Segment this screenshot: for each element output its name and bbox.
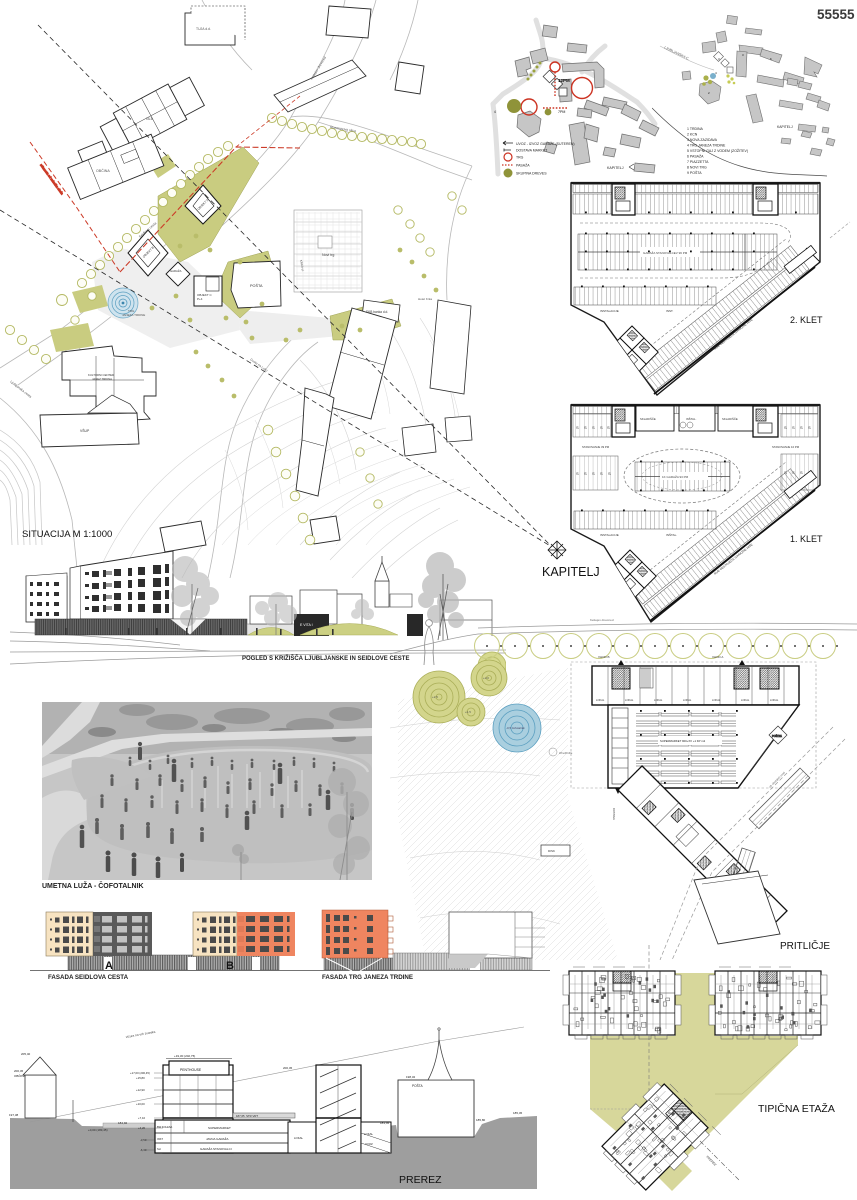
svg-text:+17,00 (200,45): +17,00 (200,45) — [130, 1071, 150, 1075]
svg-text:3 NOVA ZAZIDAVA: 3 NOVA ZAZIDAVA — [687, 138, 718, 142]
svg-text:+7,10: +7,10 — [138, 1116, 146, 1120]
svg-text:LJUBLJANSKA C.: LJUBLJANSKA C. — [664, 45, 691, 61]
svg-text:S: S — [600, 471, 603, 476]
svg-text:+12,90: +12,90 — [136, 1088, 145, 1092]
svg-text:POŠTNA: POŠTNA — [772, 735, 782, 738]
svg-text:TUJA d.d.: TUJA d.d. — [196, 27, 211, 31]
svg-text:JANEZA TRDINE: JANEZA TRDINE — [122, 313, 145, 317]
svg-text:INST.: INST. — [666, 309, 674, 313]
svg-text:Cesta na Loko: Cesta na Loko — [249, 358, 268, 373]
svg-text:187,65 STR.VRT: 187,65 STR.VRT — [236, 1114, 258, 1118]
svg-text:VHOD A: VHOD A — [712, 655, 723, 659]
svg-text:robmesta od zelenika obala: robmesta od zelenika obala — [39, 163, 64, 195]
svg-text:6 PASAŽA: 6 PASAŽA — [687, 154, 704, 159]
svg-text:+19,30 (202,75): +19,30 (202,75) — [174, 1054, 195, 1058]
svg-text:UVOZ - IZVOZ GARAŽE (SUTEREN): UVOZ - IZVOZ GARAŽE (SUTEREN) — [516, 141, 575, 146]
svg-text:FASADA SEIDLOVA CESTA: FASADA SEIDLOVA CESTA — [48, 974, 129, 981]
svg-text:4: 4 — [715, 71, 717, 75]
svg-text:197,38: 197,38 — [9, 1113, 19, 1117]
svg-text:200,45: 200,45 — [283, 1066, 293, 1070]
svg-text:KAPITELJ: KAPITELJ — [542, 565, 600, 579]
svg-text:2 KCN: 2 KCN — [687, 133, 698, 137]
svg-text:LOKAL: LOKAL — [712, 698, 721, 702]
svg-text:+4,20: +4,20 — [138, 1126, 146, 1130]
svg-text:1 TRDINA: 1 TRDINA — [687, 127, 704, 131]
svg-text:+15,80: +15,80 — [136, 1076, 145, 1080]
svg-text:8 NOVI TRG: 8 NOVI TRG — [687, 166, 707, 170]
svg-text:LOKAL: LOKAL — [625, 698, 634, 702]
svg-text:INŠTAL.: INŠTAL. — [686, 416, 697, 421]
svg-text:Kettejev drevored: Kettejev drevored — [590, 618, 614, 622]
svg-text:INSTALACIJE: INSTALACIJE — [600, 309, 619, 313]
svg-text:SH: SH — [157, 1147, 161, 1151]
svg-text:S: S — [584, 425, 587, 430]
svg-text:POŠTA: POŠTA — [250, 283, 263, 288]
svg-text:184,92: 184,92 — [118, 1121, 128, 1125]
svg-text:OBČINA: OBČINA — [96, 168, 110, 173]
svg-text:LOKAL: LOKAL — [654, 698, 663, 702]
svg-text:Hotel Krka: Hotel Krka — [418, 297, 432, 301]
svg-text:185,80: 185,80 — [476, 1118, 486, 1122]
svg-text:S: S — [600, 425, 603, 430]
svg-text:+2,0: +2,0 — [483, 676, 489, 680]
svg-text:S: S — [784, 425, 787, 430]
svg-text:VHOD B: VHOD B — [598, 655, 610, 659]
svg-text:LOKAL: LOKAL — [683, 698, 692, 702]
svg-text:LOKAL: LOKAL — [294, 1136, 303, 1140]
svg-text:1. KLET: 1. KLET — [790, 534, 823, 544]
svg-text:185,45: 185,45 — [513, 1111, 523, 1115]
svg-text:+1,5: +1,5 — [465, 710, 471, 714]
svg-text:LOKAL: LOKAL — [770, 698, 779, 702]
svg-text:BW KOLESA: BW KOLESA — [157, 1125, 173, 1129]
svg-text:12PM: 12PM — [558, 78, 570, 83]
svg-text:+10,00: +10,00 — [136, 1102, 145, 1106]
svg-text:STANOVANJE 39 PM: STANOVANJE 39 PM — [582, 445, 610, 449]
svg-text:1K GARAŽA 93 PM: 1K GARAŽA 93 PM — [662, 474, 689, 479]
svg-text:S: S — [800, 425, 803, 430]
svg-text:VŠUP: VŠUP — [80, 428, 90, 433]
svg-text:vizura na vrh zvonika: vizura na vrh zvonika — [125, 1030, 155, 1039]
svg-text:SKLADIŠČE: SKLADIŠČE — [722, 416, 738, 421]
svg-text:2. KLET: 2. KLET — [790, 315, 823, 325]
svg-text:STANOVANJE 10 PM: STANOVANJE 10 PM — [772, 445, 800, 449]
svg-text:9 POŠTA: 9 POŠTA — [687, 170, 702, 175]
svg-text:JAVNA GARAŽA: JAVNA GARAŽA — [206, 1136, 228, 1141]
svg-text:S: S — [576, 471, 579, 476]
svg-text:A: A — [105, 960, 113, 972]
svg-text:KAPITELJ: KAPITELJ — [607, 166, 624, 170]
svg-text:E VITA I: E VITA I — [300, 623, 313, 627]
svg-text:+0,00 (183,45): +0,00 (183,45) — [88, 1128, 108, 1132]
svg-text:TIPIČNA ETAŽA: TIPIČNA ETAŽA — [758, 1102, 835, 1115]
svg-text:INST: INST — [157, 1137, 163, 1141]
svg-text:198,32: 198,32 — [406, 1075, 416, 1079]
svg-text:UVOZ: UVOZ — [365, 1142, 373, 1146]
svg-text:S: S — [592, 425, 595, 430]
svg-text:S: S — [584, 471, 587, 476]
svg-text:DISK: DISK — [548, 849, 555, 853]
svg-text:WinoProfile: WinoProfile — [559, 751, 573, 755]
svg-text:SUPERMARKET 900+XX +1 KP m2: SUPERMARKET 900+XX +1 KP m2 — [660, 739, 706, 743]
svg-text:GARAŽA STANOVALCI: GARAŽA STANOVALCI — [200, 1146, 232, 1151]
svg-text:S: S — [792, 425, 795, 430]
svg-text:JANEZ TRDINA: JANEZ TRDINA — [92, 377, 112, 381]
svg-text:7PM: 7PM — [558, 110, 565, 114]
svg-text:SKUPINA DREVES: SKUPINA DREVES — [516, 172, 547, 176]
svg-text:FASADA TRG JANEZA TRDINE: FASADA TRG JANEZA TRDINE — [322, 974, 413, 981]
svg-text:NLB: NLB — [146, 117, 154, 121]
svg-text:OBČINA: OBČINA — [14, 1073, 26, 1078]
svg-text:INSTALACIJE: INSTALACIJE — [600, 533, 619, 537]
svg-text:SKLADIŠČE: SKLADIŠČE — [640, 416, 656, 421]
svg-text:7 PIAZZETTA: 7 PIAZZETTA — [687, 160, 709, 164]
svg-text:LOKAL: LOKAL — [596, 698, 605, 702]
svg-text:KAPITELJ: KAPITELJ — [777, 125, 793, 129]
svg-text:GARAŽA: GARAŽA — [170, 268, 182, 273]
svg-text:S: S — [800, 470, 803, 475]
svg-text:4: 4 — [494, 110, 496, 114]
svg-text:PASAŽA: PASAŽA — [516, 163, 530, 168]
svg-text:POŠTA: POŠTA — [412, 1083, 423, 1088]
svg-text:+2,5: +2,5 — [432, 695, 438, 699]
svg-text:205,40: 205,40 — [21, 1052, 31, 1056]
svg-text:5 VSTOPNI GAJ Z VODEM (ZOŽITEV: 5 VSTOPNI GAJ Z VODEM (ZOŽITEV) — [687, 148, 748, 153]
svg-text:S: S — [607, 425, 610, 430]
svg-text:PENTHOUSE: PENTHOUSE — [180, 1068, 202, 1072]
svg-text:S: S — [592, 471, 595, 476]
svg-text:LOKAL: LOKAL — [741, 698, 750, 702]
svg-text:4 TRG JANEZA TRDINE: 4 TRG JANEZA TRDINE — [687, 144, 726, 148]
svg-text:DOSTAVA MARKET: DOSTAVA MARKET — [516, 149, 548, 153]
svg-text:183,45: 183,45 — [380, 1121, 390, 1125]
svg-text:INŠTAL.: INŠTAL. — [666, 532, 677, 537]
svg-text:Novi trg: Novi trg — [322, 253, 334, 257]
svg-text:S: S — [608, 471, 611, 476]
svg-text:DOSTAVA: DOSTAVA — [612, 808, 616, 820]
svg-text:B: B — [226, 960, 234, 972]
svg-text:PREREZ: PREREZ — [399, 1174, 442, 1186]
svg-text:P+4: P+4 — [197, 297, 203, 301]
svg-text:SUPERMARKET: SUPERMARKET — [208, 1126, 231, 1130]
svg-text:TRG: TRG — [516, 156, 524, 160]
svg-text:S: S — [808, 425, 811, 430]
svg-text:S: S — [576, 425, 579, 430]
svg-text:-0,5 čofotalnik: -0,5 čofotalnik — [506, 726, 525, 730]
svg-text:200,45: 200,45 — [14, 1069, 24, 1073]
